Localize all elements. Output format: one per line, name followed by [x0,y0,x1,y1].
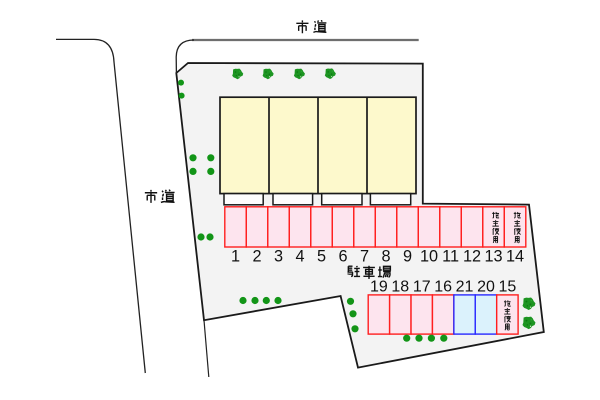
svg-text:6: 6 [339,247,348,265]
svg-text:5: 5 [317,247,326,265]
svg-text:14: 14 [506,247,524,265]
svg-text:3: 3 [274,247,283,265]
svg-text:16: 16 [434,278,452,295]
svg-text:9: 9 [403,247,412,265]
svg-text:8: 8 [382,247,391,265]
svg-text:21: 21 [456,278,474,295]
svg-text:17: 17 [413,278,431,295]
svg-text:15: 15 [499,278,517,295]
svg-text:19: 19 [370,278,388,295]
svg-text:7: 7 [360,247,369,265]
svg-text:4: 4 [296,247,305,265]
svg-text:10: 10 [420,247,438,265]
svg-text:2: 2 [253,247,262,265]
svg-text:20: 20 [477,278,495,295]
svg-text:11: 11 [442,247,459,265]
svg-text:12: 12 [463,247,481,265]
svg-text:18: 18 [391,278,409,295]
svg-text:13: 13 [484,247,502,265]
svg-text:1: 1 [231,247,240,265]
